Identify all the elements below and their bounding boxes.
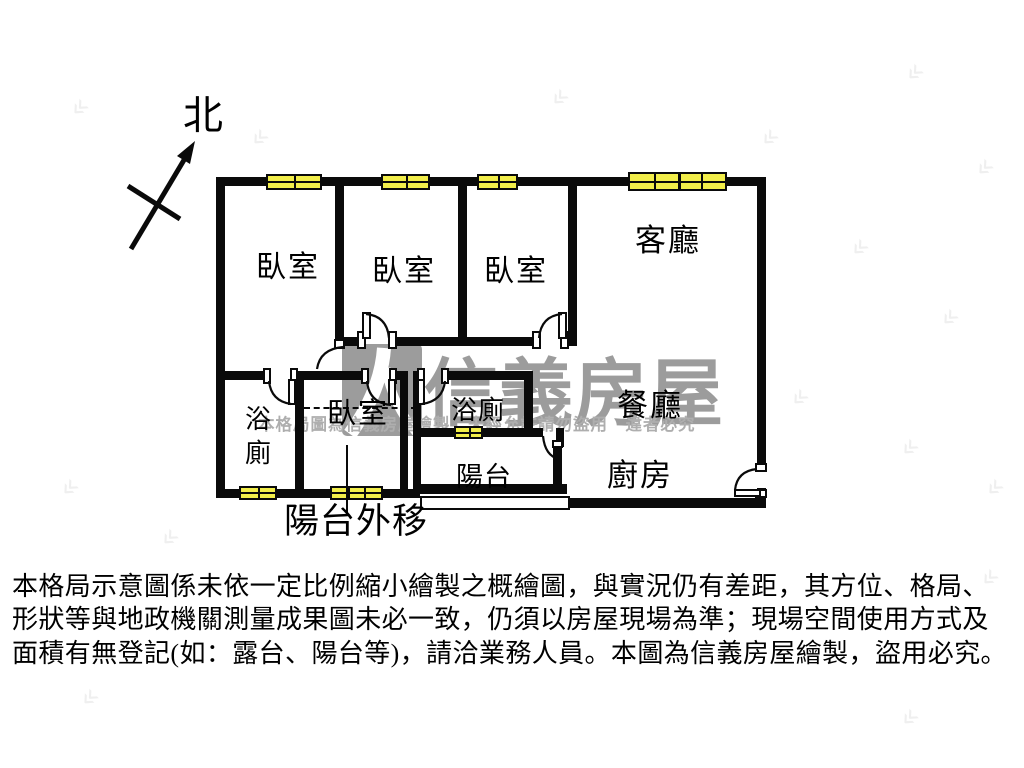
room-label-bedroom4: 臥室: [315, 399, 401, 431]
door-swing-arc: [543, 436, 559, 459]
room-label-bedroom1: 臥室: [243, 251, 333, 284]
door-swing-arc: [269, 381, 291, 404]
disclaimer-line1: 本格局示意圖係未依一定比例縮小繪製之概繪圖，與實況仍有差距，其方位、格局、: [12, 570, 1016, 603]
room-label-dining: 餐廳: [604, 389, 696, 423]
room-label-balcony: 陽台: [453, 463, 515, 493]
door-swing-arc: [735, 469, 757, 490]
north-label: 北: [183, 94, 223, 138]
room-label-bathroom2: 浴廁: [449, 397, 507, 426]
balcony-moved-label: 陽台外移: [281, 503, 431, 542]
disclaimer: 本格局示意圖係未依一定比例縮小繪製之概繪圖，與實況仍有差距，其方位、格局、 形狀…: [12, 570, 1016, 670]
room-label-bedroom3: 臥室: [470, 255, 562, 288]
north-arrow-icon: [128, 141, 195, 249]
door-swing-arc: [539, 314, 562, 338]
door-swing-arc: [317, 347, 343, 369]
disclaimer-line2: 形狀等與地政機關測量成果圖未必一致，仍須以房屋現場為準；現場空間使用方式及: [12, 603, 1016, 636]
room-label-bedroom2: 臥室: [358, 255, 450, 288]
room-label-kitchen: 廚房: [594, 459, 686, 493]
room-label-living: 客廳: [620, 224, 716, 258]
floorplan-canvas: «««««««««««««««« 信義房屋 本格局圖為信義房屋繪製 未經允許請勿…: [0, 0, 1024, 768]
disclaimer-line3: 面積有無登記(如：露台、陽台等)，請洽業務人員。本圖為信義房屋繪製，盜用必究。: [12, 637, 1016, 670]
door-swing-arc: [422, 381, 445, 404]
door-swing-arc: [366, 314, 389, 338]
room-label-bathroom1: 浴廁: [243, 403, 273, 471]
